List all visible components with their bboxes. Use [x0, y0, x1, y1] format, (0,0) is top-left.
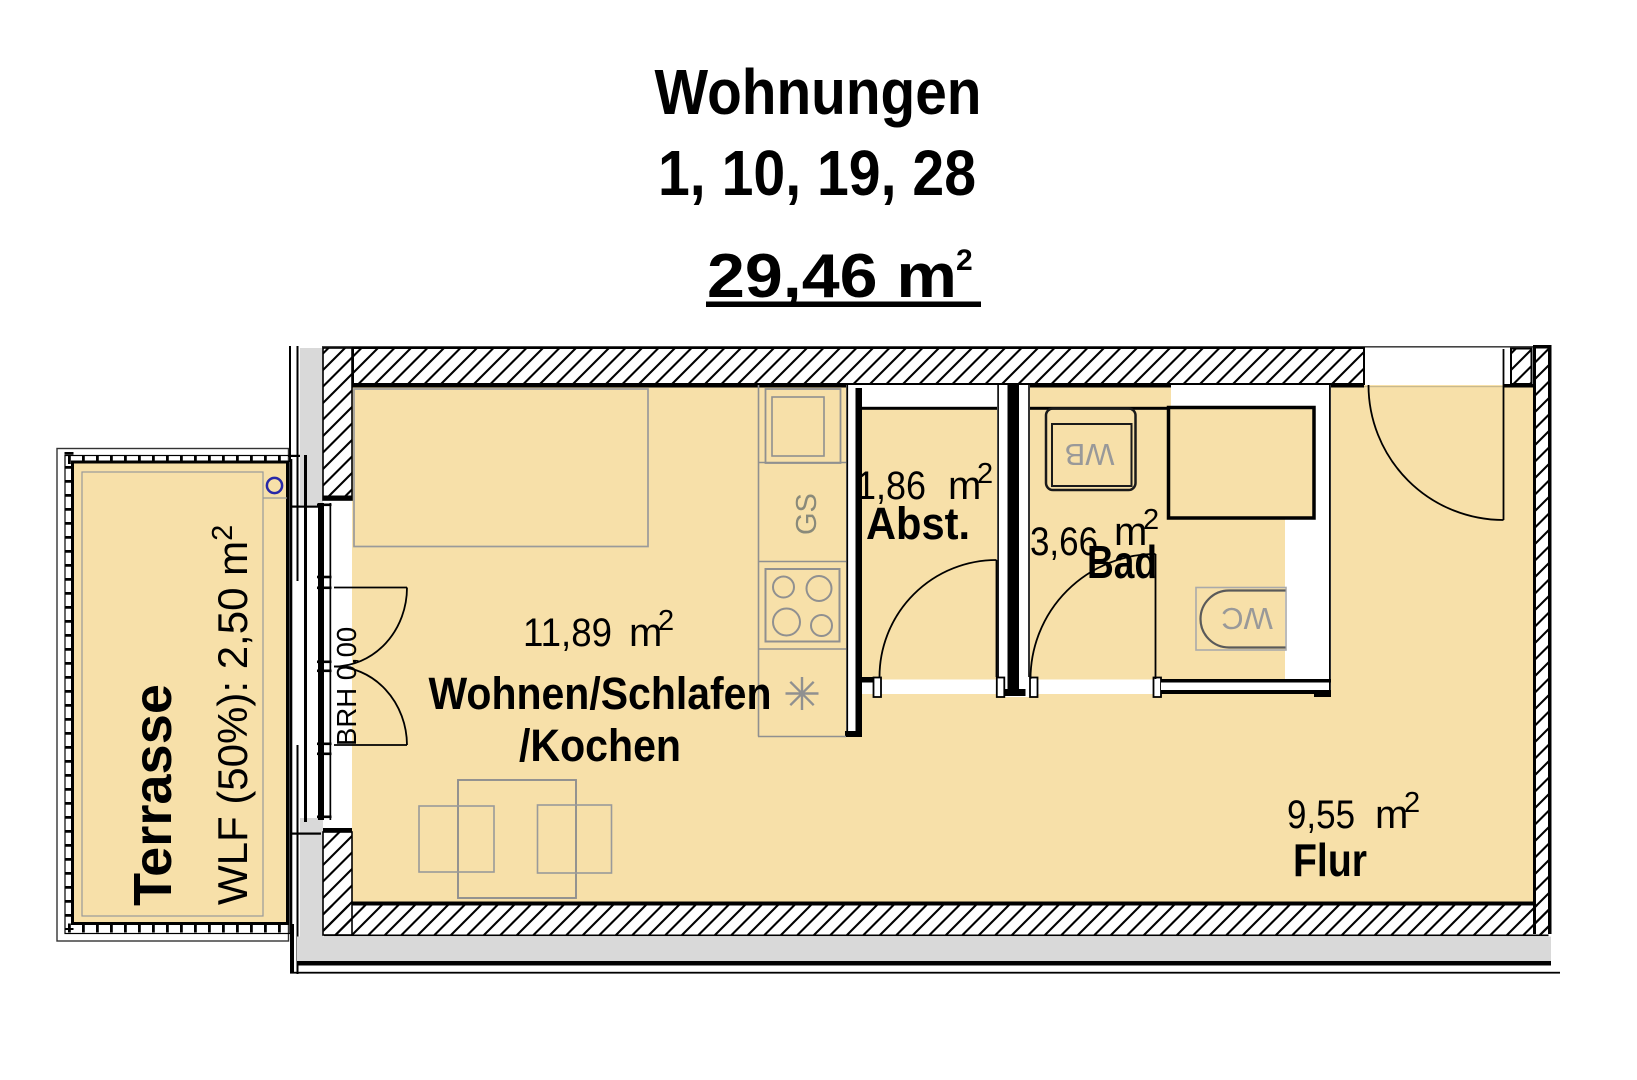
svg-text:Abst.: Abst. [866, 498, 970, 549]
svg-text:Flur: Flur [1293, 834, 1367, 886]
svg-text:Bad: Bad [1087, 536, 1157, 588]
svg-text:29,46 m: 29,46 m [707, 242, 957, 311]
svg-text:Wohnungen: Wohnungen [655, 56, 982, 128]
svg-text:BRH 0,00: BRH 0,00 [331, 627, 362, 746]
svg-text:2: 2 [977, 458, 993, 490]
svg-text:9,55: 9,55 [1287, 793, 1355, 837]
svg-text:WLF (50%): 2,50 m2: WLF (50%): 2,50 m2 [207, 525, 256, 905]
svg-text:GS: GS [791, 493, 823, 535]
svg-text:2: 2 [956, 244, 973, 277]
svg-text:2: 2 [1143, 504, 1159, 536]
svg-text:1, 10, 19, 28: 1, 10, 19, 28 [658, 137, 976, 209]
svg-text:WC: WC [1221, 601, 1273, 636]
svg-text:2: 2 [658, 605, 674, 637]
svg-text:WB: WB [1065, 437, 1115, 472]
svg-text:Terrasse: Terrasse [123, 684, 183, 906]
svg-text:11,89: 11,89 [523, 611, 612, 655]
svg-text:/Kochen: /Kochen [519, 720, 681, 771]
svg-text:2: 2 [1404, 787, 1420, 819]
svg-text:Wohnen/Schlafen: Wohnen/Schlafen [429, 668, 772, 719]
